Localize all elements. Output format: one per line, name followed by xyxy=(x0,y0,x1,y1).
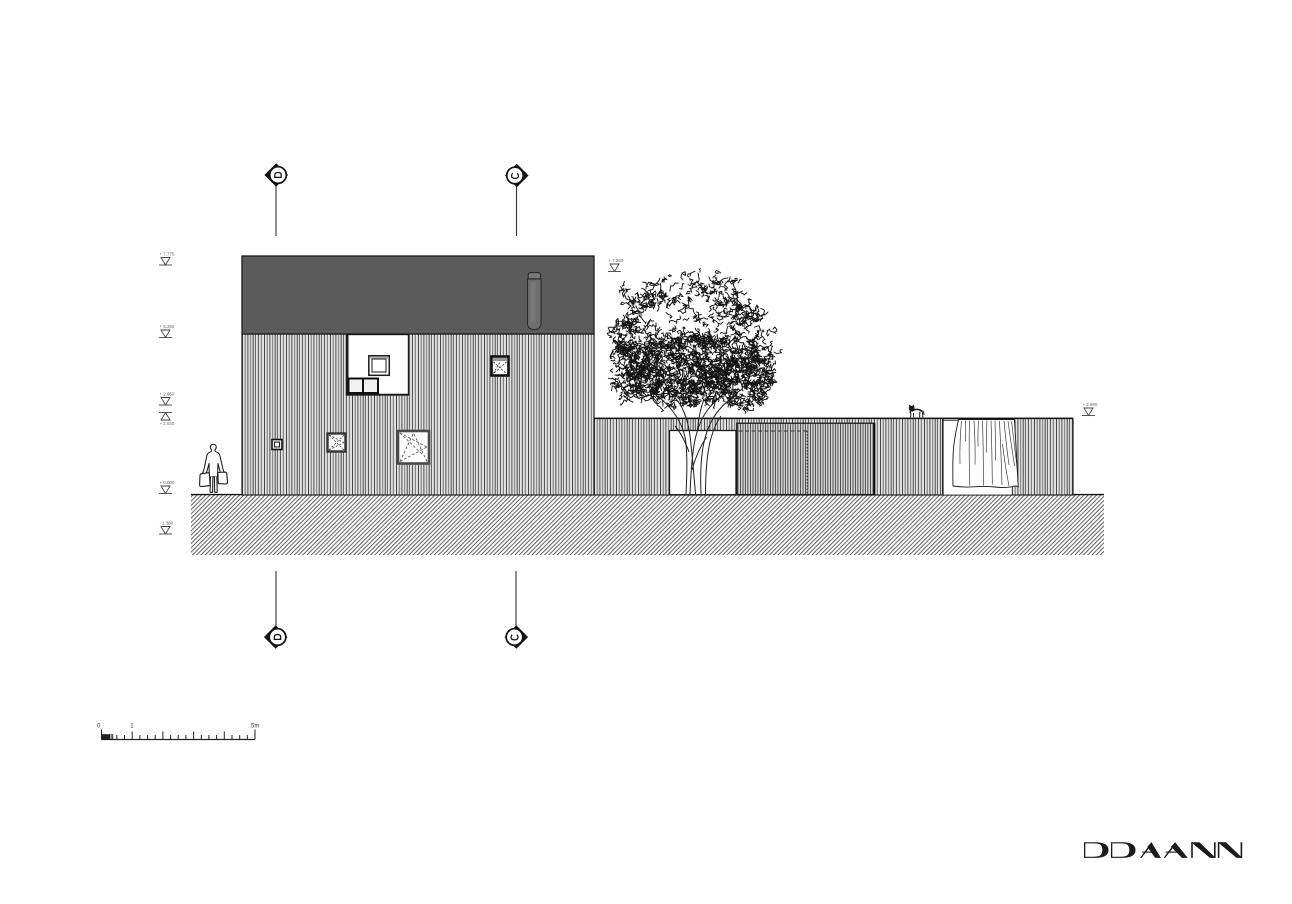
svg-text:0: 0 xyxy=(97,724,101,730)
svg-text:+ 0.000: + 0.000 xyxy=(160,480,175,485)
svg-text:+ 2.640: + 2.640 xyxy=(160,421,175,426)
svg-text:5m: 5m xyxy=(251,724,259,730)
svg-text:+ 7.280: + 7.280 xyxy=(609,258,624,263)
svg-text:- 1.380: - 1.380 xyxy=(160,521,174,526)
svg-text:+ 2.590: + 2.590 xyxy=(1083,402,1098,407)
svg-text:1: 1 xyxy=(130,724,134,730)
svg-text:+ 7.775: + 7.775 xyxy=(160,252,175,257)
svg-text:+ 5.280: + 5.280 xyxy=(160,324,175,329)
svg-text:+ 2.960: + 2.960 xyxy=(160,392,175,397)
